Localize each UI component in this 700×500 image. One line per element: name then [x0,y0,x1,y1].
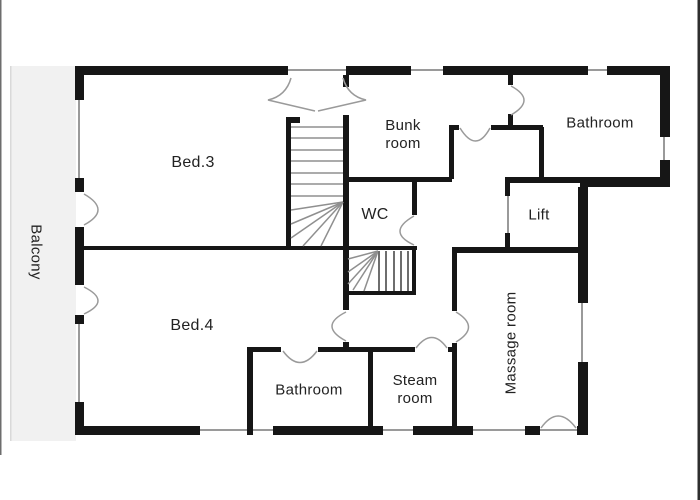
double-door-right-leaf [318,78,366,111]
room-label-lift: Lift [528,207,549,224]
bed3-balcony-door [84,194,98,225]
bathroom-upper-door [511,86,524,115]
floor-plan: Balcony Bed.3 Bed.4 Bunk room WC Bathroo… [0,0,700,500]
staircase-upper [291,127,343,246]
room-label-bed4: Bed.4 [170,317,213,335]
wc-door [400,216,414,245]
room-label-bed3: Bed.3 [171,154,214,172]
bed4-balcony-door [84,287,98,314]
floor-plan-drawing [0,0,700,500]
room-label-balcony: Balcony [28,224,45,279]
bed4-hall-door [332,312,346,341]
massage-room-door [456,312,469,342]
room-label-bunk-room: Bunk room [370,117,436,153]
room-label-wc: WC [361,206,388,224]
staircase-lower [346,247,416,295]
room-label-bathroom-upper: Bathroom [566,115,633,132]
photo-edge-left [0,0,2,455]
steam-room-door [416,338,447,349]
massage-room-outer-door [541,416,576,428]
lobby-door [460,128,490,141]
room-label-steam-room: Steam room [382,372,448,408]
double-door-left-leaf [268,78,315,111]
bathroom-lower-door [283,351,317,363]
room-label-bathroom-lower: Bathroom [275,382,342,399]
room-label-massage-room: Massage room [503,292,520,395]
